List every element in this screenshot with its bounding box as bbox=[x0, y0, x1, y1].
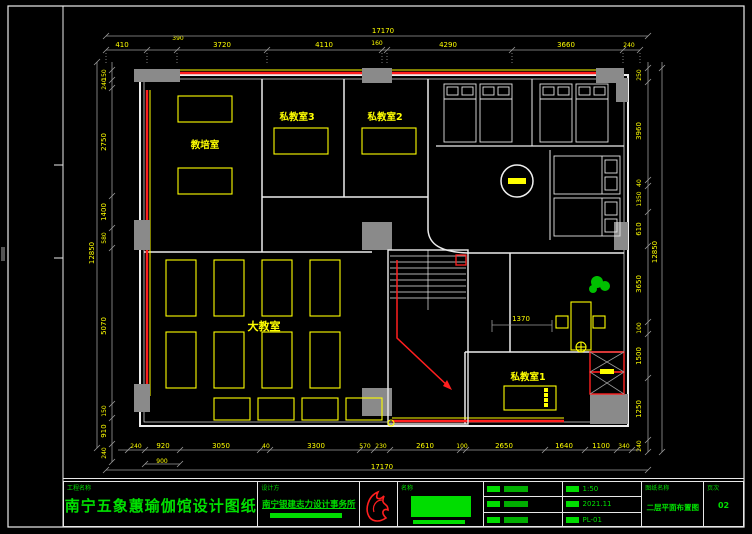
svg-text:1400: 1400 bbox=[100, 203, 108, 221]
stairs bbox=[388, 250, 468, 426]
desk-dimension: 1370 bbox=[492, 315, 552, 332]
masked-name-cell: 名称 bbox=[398, 482, 484, 526]
masked-value bbox=[504, 517, 528, 523]
yoga-mat bbox=[166, 332, 196, 388]
drawing-name: 二层平面布置图 bbox=[642, 502, 703, 513]
logo-cell bbox=[360, 482, 398, 526]
yoga-mat bbox=[262, 332, 292, 388]
number-label-mask bbox=[566, 517, 579, 523]
page-label: 页次 bbox=[707, 483, 719, 492]
svg-text:240: 240 bbox=[101, 78, 108, 90]
mat-annotation bbox=[544, 388, 548, 407]
svg-text:4290: 4290 bbox=[439, 41, 457, 49]
private-room-1: 私教室1 bbox=[504, 371, 556, 410]
dim-right-total: 12850 bbox=[651, 241, 659, 263]
svg-text:3300: 3300 bbox=[307, 442, 325, 450]
title-block-topline bbox=[63, 478, 744, 479]
date-value: 2021.11 bbox=[583, 500, 612, 508]
page-number: 02 bbox=[704, 501, 743, 510]
bed bbox=[480, 84, 512, 142]
designer-cell: 设计方 南宁银建志力设计事务所 bbox=[258, 482, 360, 526]
svg-text:150: 150 bbox=[101, 405, 108, 417]
svg-text:40: 40 bbox=[636, 179, 643, 187]
yoga-mat bbox=[310, 332, 340, 388]
yoga-mat bbox=[178, 96, 232, 122]
drawing-number: PL-01 bbox=[583, 516, 602, 524]
masked-label bbox=[487, 486, 500, 492]
svg-text:100: 100 bbox=[636, 322, 643, 334]
svg-text:250: 250 bbox=[636, 69, 643, 81]
masked-underline bbox=[413, 520, 465, 524]
svg-text:920: 920 bbox=[156, 442, 169, 450]
project-label: 工程名称 bbox=[67, 483, 91, 492]
yoga-mat bbox=[258, 398, 294, 420]
drawing-name-cell: 图纸名称 二层平面布置图 bbox=[642, 482, 704, 526]
training-room: 教培室 bbox=[178, 96, 232, 194]
svg-text:2750: 2750 bbox=[100, 133, 108, 151]
yoga-mat bbox=[214, 332, 244, 388]
dim-top-total: 17170 bbox=[372, 27, 394, 35]
yoga-mat bbox=[310, 260, 340, 316]
masked-label bbox=[487, 517, 500, 523]
svg-text:160: 160 bbox=[371, 40, 383, 47]
svg-text:3720: 3720 bbox=[213, 41, 231, 49]
masked-value bbox=[504, 486, 528, 492]
svg-text:3650: 3650 bbox=[635, 275, 643, 293]
bed bbox=[444, 84, 476, 142]
bed bbox=[554, 198, 620, 236]
dim-left-total: 12850 bbox=[88, 242, 96, 264]
round-table bbox=[501, 165, 533, 197]
project-cell: 工程名称 南宁五象蕙瑜伽馆设计图纸 bbox=[64, 482, 258, 526]
room-label-big: 大教室 bbox=[248, 319, 281, 333]
masked-value bbox=[504, 501, 528, 507]
designer-label: 设计方 bbox=[261, 483, 279, 492]
floor-plan-drawing: 1370 教培室 私教室3 私教室2 bbox=[0, 0, 752, 534]
svg-text:2610: 2610 bbox=[416, 442, 434, 450]
name-label: 名称 bbox=[401, 483, 413, 492]
svg-text:1100: 1100 bbox=[592, 442, 610, 450]
room-label-training: 教培室 bbox=[190, 139, 220, 151]
stair-direction-arrow bbox=[397, 260, 450, 388]
yoga-mat bbox=[362, 128, 416, 154]
shaft bbox=[590, 352, 624, 394]
svg-text:1350: 1350 bbox=[636, 191, 643, 206]
page-cell: 页次 02 bbox=[704, 482, 743, 526]
svg-text:610: 610 bbox=[635, 222, 643, 235]
yoga-mat bbox=[262, 260, 292, 316]
dim-desk: 1370 bbox=[512, 315, 530, 323]
yoga-mat bbox=[302, 398, 338, 420]
scale-value: 1:50 bbox=[583, 485, 599, 493]
svg-text:240: 240 bbox=[101, 447, 108, 459]
title-block: 工程名称 南宁五象蕙瑜伽馆设计图纸 设计方 南宁银建志力设计事务所 名称 1:5… bbox=[63, 481, 744, 527]
plant-icon bbox=[589, 276, 610, 293]
yoga-mat bbox=[178, 168, 232, 194]
yoga-mat bbox=[214, 398, 250, 420]
scale-label-mask bbox=[566, 486, 579, 492]
bed bbox=[576, 84, 608, 142]
red-logo-icon bbox=[360, 482, 396, 526]
private-room-3: 私教室3 bbox=[274, 111, 328, 154]
desk-set bbox=[556, 302, 605, 352]
svg-text:1500: 1500 bbox=[635, 347, 643, 365]
svg-text:230: 230 bbox=[375, 443, 387, 450]
svg-text:580: 580 bbox=[101, 232, 108, 244]
project-title: 南宁五象蕙瑜伽馆设计图纸 bbox=[64, 495, 257, 516]
big-classroom: 大教室 bbox=[166, 260, 382, 420]
yoga-mat bbox=[274, 128, 328, 154]
svg-text:3660: 3660 bbox=[557, 41, 575, 49]
svg-text:3960: 3960 bbox=[635, 122, 643, 140]
margin-mark bbox=[1, 247, 5, 261]
room-label-private3: 私教室3 bbox=[278, 111, 314, 123]
yoga-mat bbox=[166, 260, 196, 316]
svg-text:2650: 2650 bbox=[495, 442, 513, 450]
stair-marker bbox=[456, 255, 466, 265]
svg-text:910: 910 bbox=[100, 424, 108, 437]
bed bbox=[540, 84, 572, 142]
svg-text:340: 340 bbox=[618, 443, 630, 450]
meta-cell: 1:50 2021.11 PL-01 bbox=[563, 482, 643, 526]
room-label-private1: 私教室1 bbox=[509, 371, 545, 383]
bed bbox=[554, 156, 620, 194]
private-room-2: 私教室2 bbox=[362, 111, 416, 154]
room-label-private2: 私教室2 bbox=[366, 111, 402, 123]
masked-label bbox=[487, 501, 500, 507]
svg-text:5070: 5070 bbox=[100, 317, 108, 335]
svg-text:240: 240 bbox=[130, 443, 142, 450]
yoga-mat bbox=[214, 260, 244, 316]
cad-sheet: 1370 教培室 私教室3 私教室2 bbox=[0, 0, 752, 534]
date-label-mask bbox=[566, 501, 579, 507]
svg-text:1250: 1250 bbox=[635, 400, 643, 418]
masked-text bbox=[411, 496, 471, 517]
yoga-mat bbox=[504, 386, 556, 410]
svg-text:3050: 3050 bbox=[212, 442, 230, 450]
designer-stamp-bar bbox=[270, 513, 342, 518]
svg-text:1640: 1640 bbox=[555, 442, 573, 450]
designer-name: 南宁银建志力设计事务所 bbox=[258, 498, 359, 510]
svg-text:40: 40 bbox=[262, 443, 270, 450]
svg-text:4110: 4110 bbox=[315, 41, 333, 49]
signatures-cell bbox=[484, 482, 563, 526]
svg-text:410: 410 bbox=[115, 41, 128, 49]
svg-text:100: 100 bbox=[456, 443, 468, 450]
drawing-name-label: 图纸名称 bbox=[645, 483, 669, 492]
